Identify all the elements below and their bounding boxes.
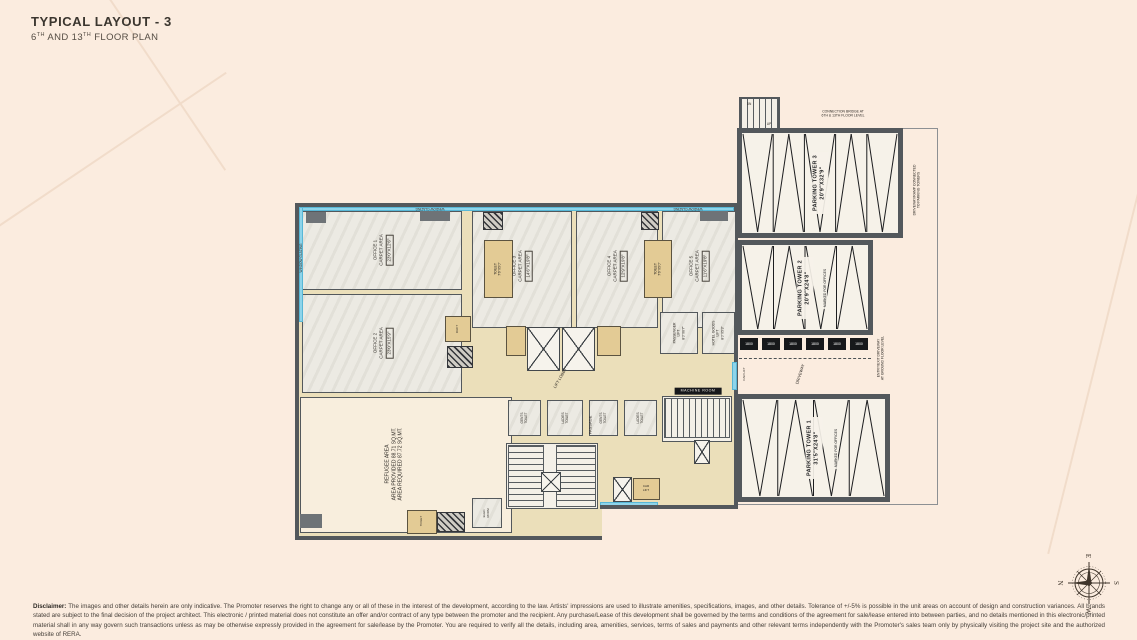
parking-tower-2-label: PARKING TOWER 220'9"X24'8" [797, 257, 814, 319]
disclaimer: Disclaimer: The images and other details… [33, 602, 1105, 639]
machine-room-label: MACHINE ROOM [675, 388, 722, 395]
glazing-carlift [732, 362, 737, 390]
compass-letter-left: N [1056, 580, 1064, 585]
parking-pallet-2: 1800 [762, 338, 780, 350]
window-glazing-left-label: WINDOW GLAZING [299, 244, 303, 273]
window-glazing-top-1-label: WINDOW GLAZING [416, 207, 445, 211]
office-1-label: OFFICE 1CARPET AREA23'0"X12'6" [373, 234, 394, 265]
passenger-lift-label: PASSENGERLIFT8'0"X6'7" [672, 323, 685, 344]
ledge-2 [420, 211, 450, 221]
window-glazing-top-2-label: WINDOW GLAZING [674, 207, 703, 211]
shaft-2 [483, 212, 503, 230]
toilet-1-label: TOILET7'6"X5'0" [494, 262, 503, 276]
duct-label: DUCT [456, 325, 460, 333]
office-4-label: OFFICE 4CARPET AREA12'9"X19'8" [607, 250, 628, 281]
disclaimer-text: The images and other details herein are … [33, 603, 1105, 638]
elec-room-label: ELEC.ROOM [483, 508, 491, 517]
office-3-label: OFFICE 3CARPET AREA14'6"X19'8" [512, 250, 533, 281]
goods-lift-label: HOTEL GOODSLIFT8'0"X5'3" [711, 321, 724, 346]
driveway-dash [739, 358, 871, 359]
staircase-2 [664, 398, 730, 438]
staircase-1-flight-a [508, 445, 544, 507]
ledge-3 [700, 211, 728, 221]
entry-exit-note: ENTRY/EXIT DRIVEWAYAT GROUND FLOOR LEVEL [877, 336, 886, 380]
driveway-note-right: DRIVEWAY/RAMP CONNECTEDTO PARKING TOWERS [913, 165, 922, 216]
parking-tower-3: PARKING TOWER 320'9"X32'9" [737, 128, 903, 238]
parking-pallet-3: 1800 [784, 338, 802, 350]
parking-tower-1-label: PARKING TOWER 131'5"X24'8" [805, 417, 822, 479]
car-lift-2-label: CARLIFT [643, 485, 649, 493]
shaft-1 [447, 346, 473, 368]
column-1 [300, 514, 322, 528]
parking-tower-2-note: MARKED FOR OFFICES [823, 266, 827, 308]
stair-dn-label: DN [747, 102, 752, 106]
wc-1-label: GENTSTOILET [520, 412, 528, 423]
disclaimer-label: Disclaimer: [33, 603, 66, 610]
toilet-4-room [597, 326, 621, 356]
refuge-area-label: REFUGEE AREAAREA PROVIDED 88.71 SQ.MT.AR… [384, 427, 404, 500]
lift-2-shaft [562, 327, 595, 371]
parking-pallet-6: 1800 [850, 338, 868, 350]
parking-pallet-5: 1800 [828, 338, 846, 350]
car-lift-shaft [613, 477, 632, 502]
toilet-2-label: TOILET7'6"X5'0" [654, 262, 663, 276]
parking-pallet-4: 1800 [806, 338, 824, 350]
parking-tower-3-label: PARKING TOWER 320'9"X32'9" [812, 152, 829, 214]
car-lift-label: CAR LIFT [743, 367, 747, 380]
office-2-label: OFFICE 2CARPET AREA23'0"X15'9" [373, 327, 394, 358]
parking-pallet-1: 1800 [740, 338, 758, 350]
parking-tower-1-note: MARKED FOR OFFICES [834, 427, 838, 469]
shaft-3 [641, 212, 659, 230]
shaft-4 [437, 512, 465, 532]
stair-1-lift-shaft [541, 472, 561, 492]
floor-plan: OFFICE 1CARPET AREA23'0"X12'6"OFFICE 2CA… [0, 0, 1137, 640]
compass-letter-right: S [1112, 581, 1120, 585]
wc-3-label: GENTSTOILET [599, 412, 607, 423]
parking-tower-1: PARKING TOWER 131'5"X24'8"MARKED FOR OFF… [737, 394, 890, 502]
stair-2-lift-shaft [694, 440, 710, 464]
compass-letter-top: E [1084, 554, 1092, 558]
wc-4-label: LADIESTOILET [636, 412, 644, 423]
wc-2-label: LADIESTOILET [561, 412, 569, 423]
parking-tower-2: PARKING TOWER 220'9"X24'8"MARKED FOR OFF… [737, 240, 873, 335]
cutout-1 [602, 509, 742, 543]
connection-note: CONNECTION BRIDGE AT6TH & 13TH FLOOR LEV… [822, 110, 865, 119]
staircase-1-flight-b [556, 445, 596, 507]
office-5-label: OFFICE 5CARPET AREA11'6"X19'8" [689, 250, 710, 281]
passage-label: PASSAGE [587, 416, 592, 435]
toilet-5-label: TOILET [420, 516, 424, 526]
lift-1-shaft [527, 327, 560, 371]
wall-seg-1 [600, 505, 738, 509]
stair-up-label: UP [767, 122, 771, 126]
glazing-top [299, 207, 734, 211]
toilet-3-room [506, 326, 526, 356]
parking-staircase [739, 97, 780, 131]
ledge-1 [306, 212, 326, 223]
